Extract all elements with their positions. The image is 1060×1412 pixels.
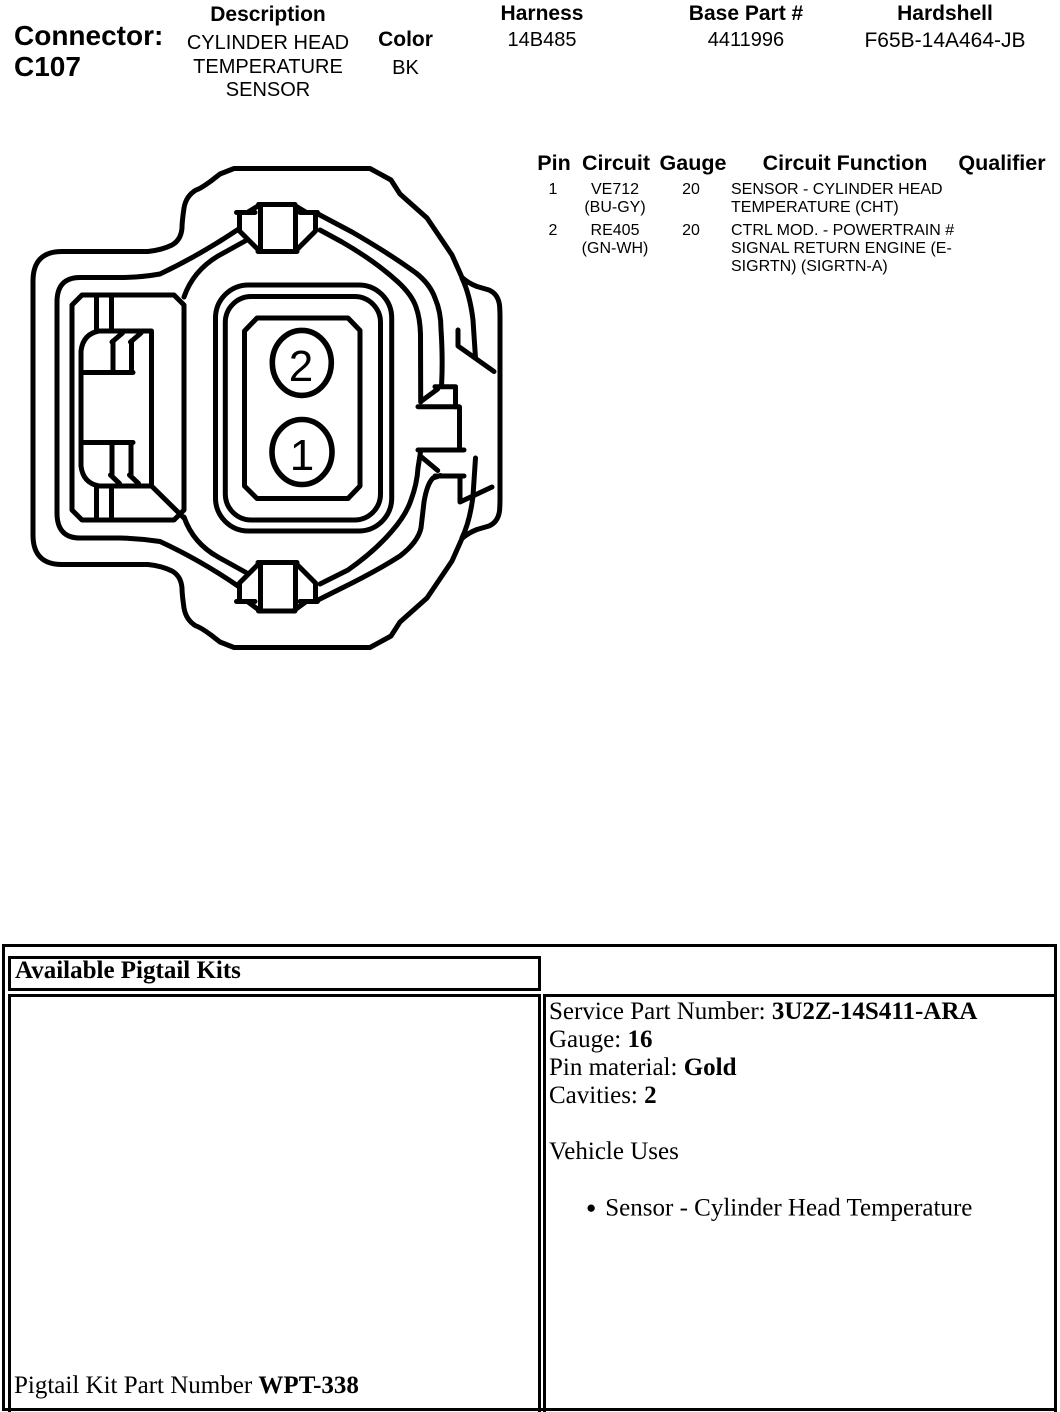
svg-text:1: 1 <box>290 431 314 480</box>
svg-text:2: 2 <box>289 342 313 391</box>
